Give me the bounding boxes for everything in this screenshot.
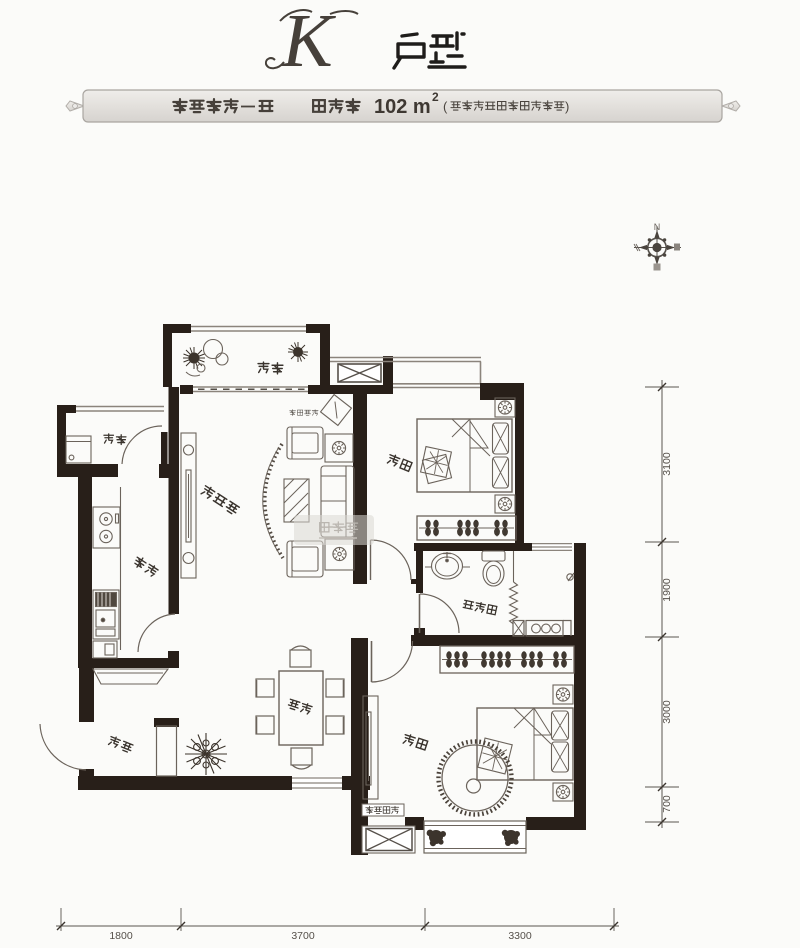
svg-text:3700: 3700 xyxy=(291,930,315,942)
svg-text:3000: 3000 xyxy=(661,700,673,724)
svg-text:3300: 3300 xyxy=(508,930,532,942)
svg-text:): ) xyxy=(565,99,569,114)
svg-text:1800: 1800 xyxy=(109,930,133,942)
svg-text:102 m: 102 m xyxy=(374,96,431,118)
svg-text:700: 700 xyxy=(661,795,673,813)
svg-text:N: N xyxy=(654,222,661,232)
svg-text:2: 2 xyxy=(432,90,439,104)
svg-text:1900: 1900 xyxy=(661,578,673,602)
svg-text:(: ( xyxy=(443,99,448,114)
svg-text:K: K xyxy=(281,0,336,83)
svg-text:3100: 3100 xyxy=(661,452,673,476)
